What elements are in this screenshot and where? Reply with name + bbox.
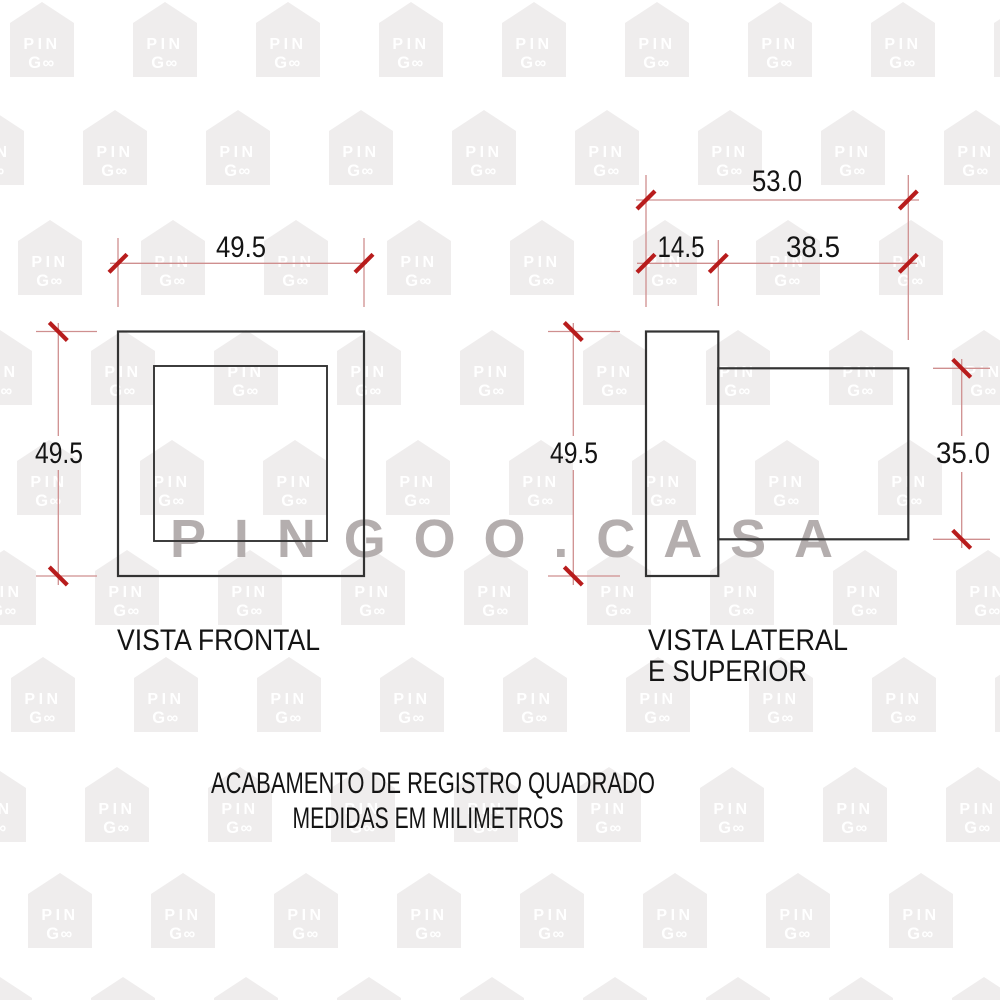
dimension-label-front-width: 49.5 (216, 231, 266, 264)
side-view-caption-line2: E SUPERIOR (648, 655, 807, 688)
dimension-label-side-height: 49.5 (550, 437, 598, 470)
dimension-label-front-height: 49.5 (35, 437, 83, 470)
side-view-caption-line1: VISTA LATERAL (648, 624, 848, 657)
drawing-layer: PINGOO.CASA 49.5 49.5 (0, 0, 1000, 1000)
technical-drawing-canvas: PING∞PING∞PING∞PING∞PING∞PING∞PING∞PING∞… (0, 0, 1000, 1000)
front-view-caption: VISTA FRONTAL (117, 624, 320, 657)
dimension-label-body-width: 38.5 (786, 231, 840, 264)
side-split-width-dimension: 14.5 38.5 (637, 231, 917, 306)
dimension-label-body-height: 35.0 (936, 437, 990, 470)
dimension-label-total-width: 53.0 (752, 165, 802, 198)
drawing-title-line1: ACABAMENTO DE REGISTRO QUADRADO (211, 767, 655, 800)
front-left-dimension: 49.5 (35, 323, 97, 586)
front-top-dimension: 49.5 (109, 231, 373, 307)
dimension-label-flange-width: 14.5 (658, 231, 705, 264)
drawing-title-line2: MEDIDAS EM MILIMETROS (293, 802, 564, 835)
side-right-dimension: 35.0 (933, 359, 990, 548)
